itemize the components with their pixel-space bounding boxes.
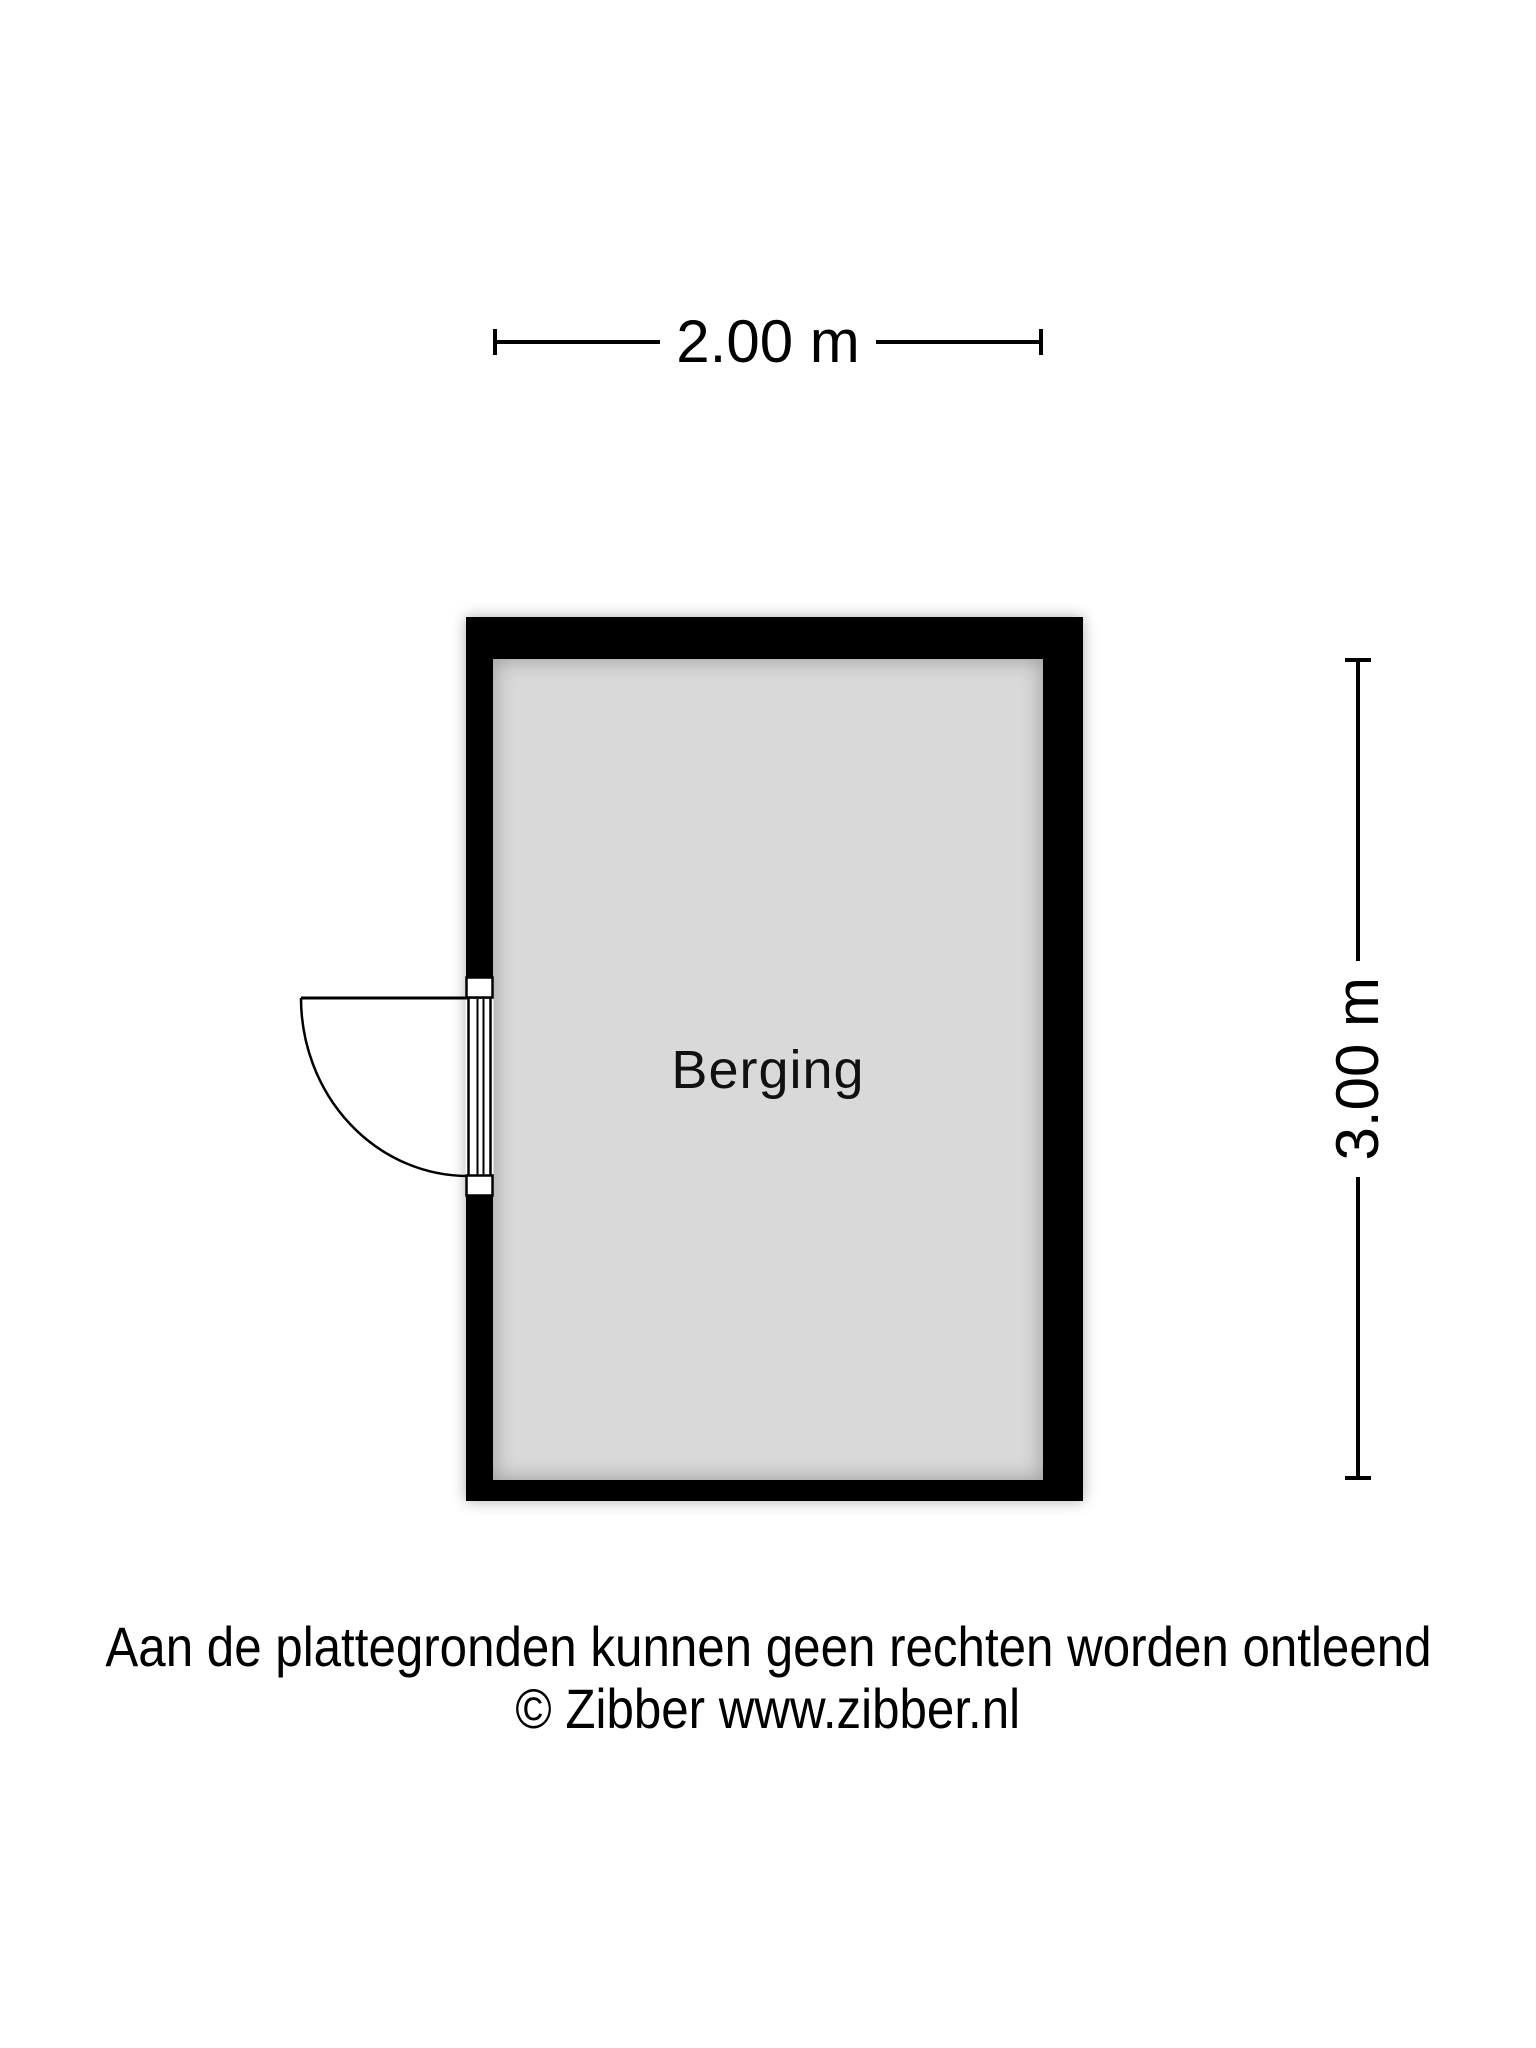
footer-copyright-line: © Zibber www.zibber.nl: [0, 1678, 1536, 1740]
room-walls: Berging: [466, 617, 1083, 1501]
dimension-height: 3.00 m: [1326, 658, 1390, 1480]
footer-copyright-text: © Zibber www.zibber.nl: [516, 1678, 1021, 1740]
door-jamb-bottom: [467, 1176, 493, 1196]
room-floor: Berging: [493, 659, 1043, 1480]
dimension-width: 2.00 m: [493, 308, 1043, 376]
dimension-height-line-bottom: [1356, 1177, 1360, 1476]
room-name-label: Berging: [671, 1039, 864, 1101]
floor-plan-page: 2.00 m Berging 3.00 m Aan de plattegrond…: [0, 0, 1536, 2048]
dimension-width-line-right: [876, 340, 1039, 344]
door-swing-arc: [301, 998, 468, 1176]
footer-disclaimer-line: Aan de plattegronden kunnen geen rechten…: [0, 1616, 1536, 1678]
dimension-width-label: 2.00 m: [676, 312, 859, 372]
footer-disclaimer-text: Aan de plattegronden kunnen geen rechten…: [105, 1616, 1431, 1678]
dimension-height-line-top: [1356, 662, 1360, 961]
footer: Aan de plattegronden kunnen geen rechten…: [0, 1616, 1536, 1740]
door-jamb-top: [467, 978, 493, 998]
door-panel: [469, 998, 491, 1177]
door-symbol: [285, 965, 500, 1210]
dimension-width-line-left: [497, 340, 660, 344]
dimension-height-label: 3.00 m: [1328, 977, 1388, 1160]
dimension-width-tick-right: [1039, 329, 1043, 355]
dimension-height-tick-bottom: [1345, 1476, 1371, 1480]
